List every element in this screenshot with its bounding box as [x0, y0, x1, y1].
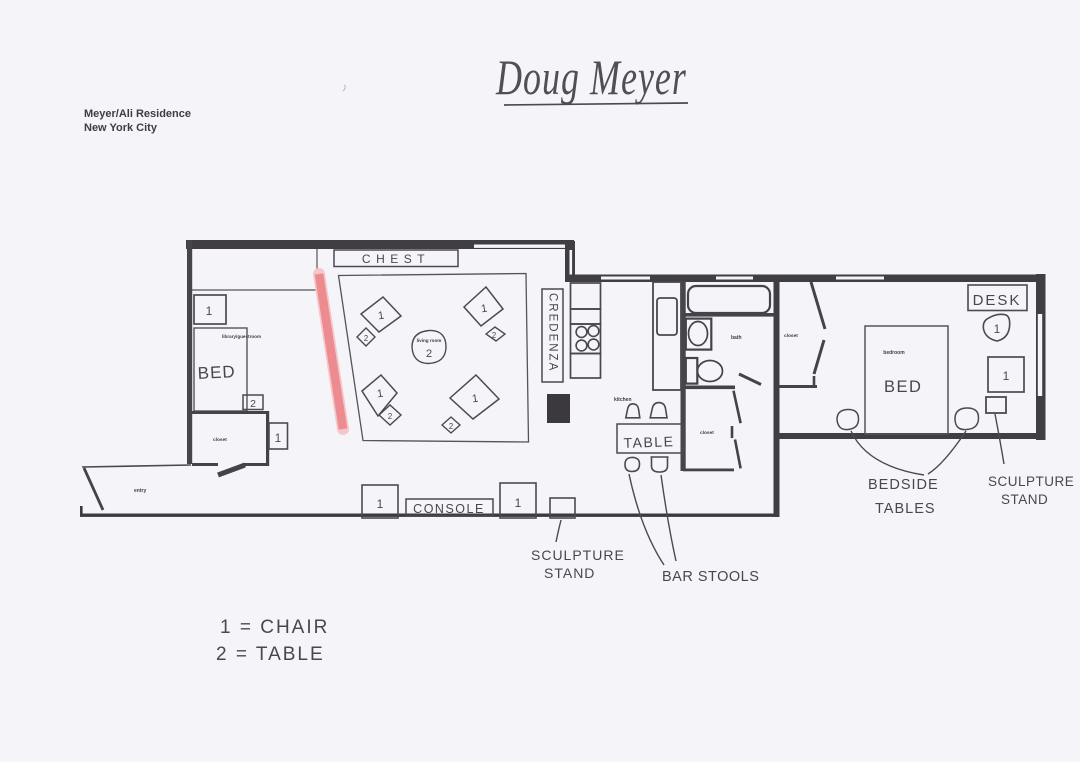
svg-text:1: 1	[515, 496, 522, 510]
svg-text:DESK: DESK	[973, 292, 1022, 309]
svg-text:1 = CHAIR: 1 = CHAIR	[220, 617, 329, 638]
svg-text:bath: bath	[731, 335, 742, 341]
svg-text:CONSOLE: CONSOLE	[413, 502, 485, 516]
svg-text:entry: entry	[134, 488, 146, 494]
svg-text:2: 2	[250, 398, 256, 410]
svg-text:SCULPTURE: SCULPTURE	[531, 547, 625, 563]
svg-text:CREDENZA: CREDENZA	[547, 293, 559, 372]
svg-text:2: 2	[426, 348, 432, 360]
svg-text:bedroom: bedroom	[883, 350, 905, 356]
svg-text:1: 1	[275, 433, 281, 445]
svg-text:1: 1	[994, 324, 1000, 336]
svg-text:STAND: STAND	[544, 565, 595, 581]
svg-text:BED: BED	[884, 378, 922, 396]
svg-text:TABLE: TABLE	[623, 433, 674, 451]
svg-text:New York City: New York City	[84, 122, 158, 134]
svg-text:2: 2	[388, 412, 393, 421]
svg-text:closet: closet	[700, 430, 714, 436]
svg-text:2 = TABLE: 2 = TABLE	[216, 644, 325, 665]
svg-text:SCULPTURE: SCULPTURE	[988, 474, 1074, 489]
svg-text:1: 1	[377, 497, 384, 511]
svg-text:Meyer/Ali Residence: Meyer/Ali Residence	[84, 108, 191, 120]
svg-text:TABLES: TABLES	[875, 501, 936, 517]
svg-text:CHEST: CHEST	[362, 252, 430, 266]
svg-text:library/guestroom: library/guestroom	[222, 334, 261, 339]
svg-text:1: 1	[206, 304, 213, 318]
svg-text:2: 2	[364, 334, 369, 343]
svg-text:2: 2	[492, 331, 497, 340]
svg-text:Doug Meyer: Doug Meyer	[495, 50, 687, 105]
svg-text:BED: BED	[197, 362, 236, 383]
svg-text:STAND: STAND	[1001, 492, 1048, 507]
svg-text:1: 1	[1003, 369, 1010, 383]
svg-text:BAR STOOLS: BAR STOOLS	[662, 569, 759, 585]
svg-text:closet: closet	[784, 333, 798, 339]
svg-text:kitchen: kitchen	[614, 397, 632, 403]
svg-text:living room: living room	[417, 338, 442, 343]
svg-text:closet: closet	[213, 437, 227, 443]
svg-text:BEDSIDE: BEDSIDE	[868, 477, 939, 493]
svg-text:2: 2	[449, 422, 454, 431]
